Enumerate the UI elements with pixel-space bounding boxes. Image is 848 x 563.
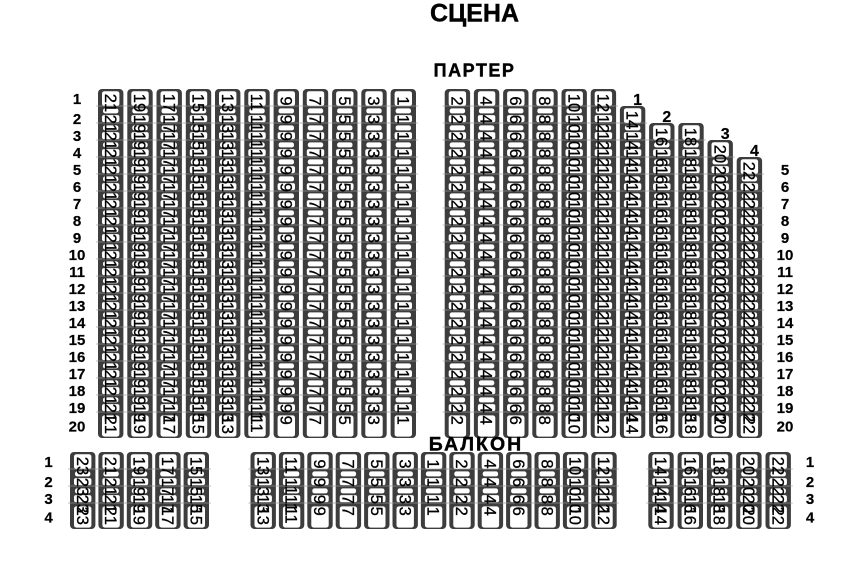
svg-text:16161616: 16161616 <box>680 457 698 525</box>
svg-text:СЦЕНА: СЦЕНА <box>430 0 519 28</box>
svg-text:151515151515151515151515151515: 1515151515151515151515151515151515151515 <box>189 94 207 434</box>
svg-text:5: 5 <box>781 162 789 179</box>
svg-text:131313131313131313131313131313: 1313131313131313131313131313131313131313 <box>218 94 236 434</box>
svg-text:141414141414141414141414141414: 14141414141414141414141414141414141414 <box>623 111 641 434</box>
svg-text:212121212121212121212121212121: 2121212121212121212121212121212121212121 <box>101 94 119 434</box>
svg-text:13: 13 <box>69 298 86 315</box>
svg-text:11: 11 <box>69 264 85 281</box>
svg-text:18: 18 <box>69 383 86 400</box>
svg-text:11111111: 11111111 <box>282 457 300 524</box>
svg-text:8: 8 <box>73 213 81 230</box>
svg-text:6: 6 <box>781 179 789 196</box>
svg-text:15151515: 15151515 <box>186 457 204 525</box>
svg-text:19191919: 19191919 <box>130 457 148 525</box>
svg-text:13: 13 <box>777 298 794 315</box>
svg-text:4: 4 <box>44 509 53 526</box>
svg-text:16: 16 <box>69 349 86 366</box>
svg-text:20202020: 20202020 <box>739 457 757 525</box>
svg-text:4: 4 <box>750 143 759 160</box>
svg-text:21212121: 21212121 <box>101 457 119 525</box>
svg-text:19: 19 <box>777 400 794 417</box>
svg-text:23232323: 23232323 <box>73 457 91 525</box>
svg-text:4: 4 <box>806 509 815 526</box>
svg-text:3: 3 <box>73 128 81 145</box>
svg-text:17: 17 <box>69 366 86 383</box>
svg-text:111111111111111111111111111111: 1111111111111111111111111111111111111111 <box>247 94 265 433</box>
svg-text:10: 10 <box>69 247 86 264</box>
svg-text:1: 1 <box>73 91 81 108</box>
svg-text:101010101010101010101010101010: 1010101010101010101010101010101010101010 <box>564 94 582 434</box>
svg-text:12: 12 <box>777 281 794 298</box>
svg-text:2: 2 <box>806 474 814 491</box>
svg-text:14: 14 <box>69 315 86 332</box>
svg-text:20: 20 <box>777 418 794 435</box>
svg-text:5: 5 <box>73 162 81 179</box>
svg-text:222222222222222222222222222222: 22222222222222222222222222222222 <box>740 162 758 434</box>
svg-text:15: 15 <box>69 332 86 349</box>
svg-text:191919191919191919191919191919: 1919191919191919191919191919191919191919 <box>130 94 148 434</box>
svg-text:19: 19 <box>69 400 86 417</box>
svg-text:20: 20 <box>69 418 86 435</box>
svg-text:3: 3 <box>806 491 814 508</box>
svg-text:11: 11 <box>777 264 793 281</box>
svg-text:6: 6 <box>73 179 81 196</box>
svg-text:171717171717171717171717171717: 1717171717171717171717171717171717171717 <box>159 94 177 434</box>
svg-text:10101010: 10101010 <box>566 457 584 525</box>
svg-text:7: 7 <box>781 196 789 213</box>
svg-text:121212121212121212121212121212: 1212121212121212121212121212121212121212 <box>594 94 612 434</box>
svg-text:13131313: 13131313 <box>253 457 271 525</box>
svg-text:7: 7 <box>73 196 81 213</box>
svg-text:2: 2 <box>73 111 81 128</box>
svg-text:16: 16 <box>777 349 794 366</box>
svg-text:18: 18 <box>777 383 794 400</box>
svg-text:3: 3 <box>44 491 52 508</box>
svg-text:1: 1 <box>633 92 642 109</box>
svg-text:9: 9 <box>781 230 789 247</box>
svg-text:202020202020202020202020202020: 2020202020202020202020202020202020 <box>710 145 728 434</box>
svg-text:2: 2 <box>44 474 52 491</box>
svg-text:1: 1 <box>44 454 52 471</box>
svg-text:17171717: 17171717 <box>158 457 176 525</box>
svg-text:161616161616161616161616161616: 161616161616161616161616161616161616 <box>652 128 670 434</box>
svg-text:3: 3 <box>721 126 730 143</box>
svg-text:14: 14 <box>777 315 794 332</box>
svg-text:12: 12 <box>69 281 86 298</box>
svg-text:12121212: 12121212 <box>594 457 612 525</box>
svg-text:18181818: 18181818 <box>710 457 728 525</box>
svg-text:4: 4 <box>73 145 82 162</box>
svg-text:15: 15 <box>777 332 794 349</box>
svg-text:2: 2 <box>662 109 671 126</box>
svg-text:1: 1 <box>806 454 814 471</box>
svg-text:ПАРТЕР: ПАРТЕР <box>434 61 516 81</box>
svg-text:181818181818181818181818181818: 181818181818181818181818181818181818 <box>681 128 699 434</box>
svg-text:8: 8 <box>781 213 789 230</box>
svg-text:22222222: 22222222 <box>768 457 786 525</box>
svg-text:17: 17 <box>777 366 794 383</box>
svg-text:14141414: 14141414 <box>651 457 669 525</box>
svg-text:10: 10 <box>777 247 794 264</box>
svg-text:9: 9 <box>73 230 81 247</box>
